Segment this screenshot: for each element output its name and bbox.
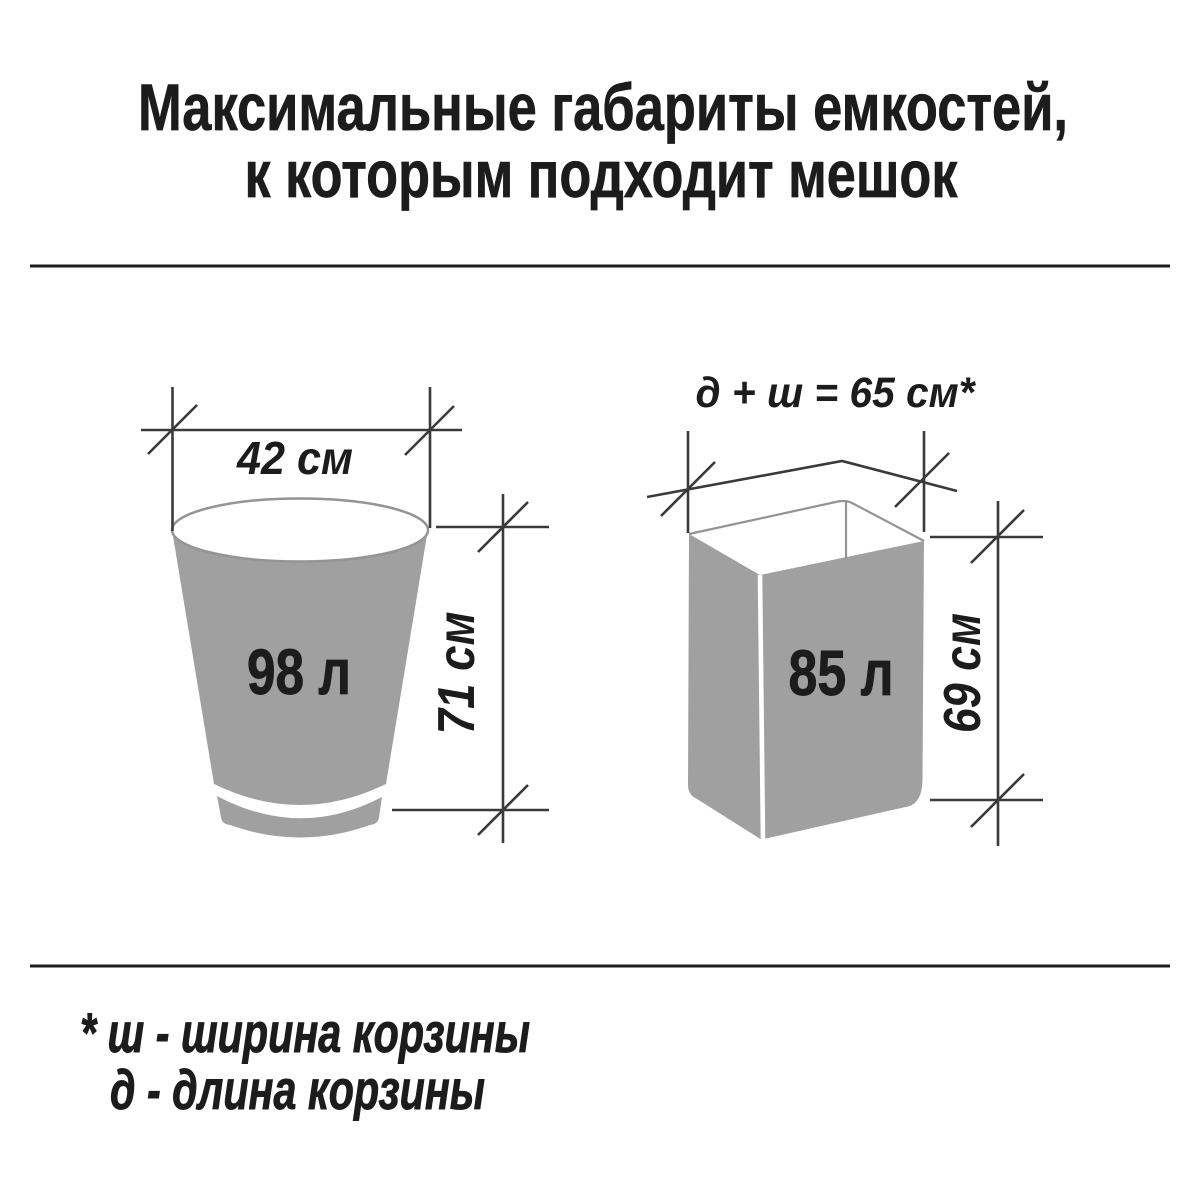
svg-text:69 см: 69 см [934,613,992,733]
svg-text:д + ш = 65 см*: д + ш = 65 см* [696,369,977,417]
svg-text:98 л: 98 л [247,636,351,708]
svg-text:71 см: 71 см [428,612,486,735]
svg-text:д - длина корзины: д - длина корзины [110,1058,485,1121]
svg-text:Максимальные габариты емкостей: Максимальные габариты емкостей, [138,70,1068,144]
svg-text:к которым подходит мешок: к которым подходит мешок [245,137,959,211]
svg-text:85 л: 85 л [789,637,894,709]
svg-text:42 см: 42 см [236,432,353,484]
svg-text:* ш - ширина корзины: * ш - ширина корзины [80,1001,530,1064]
